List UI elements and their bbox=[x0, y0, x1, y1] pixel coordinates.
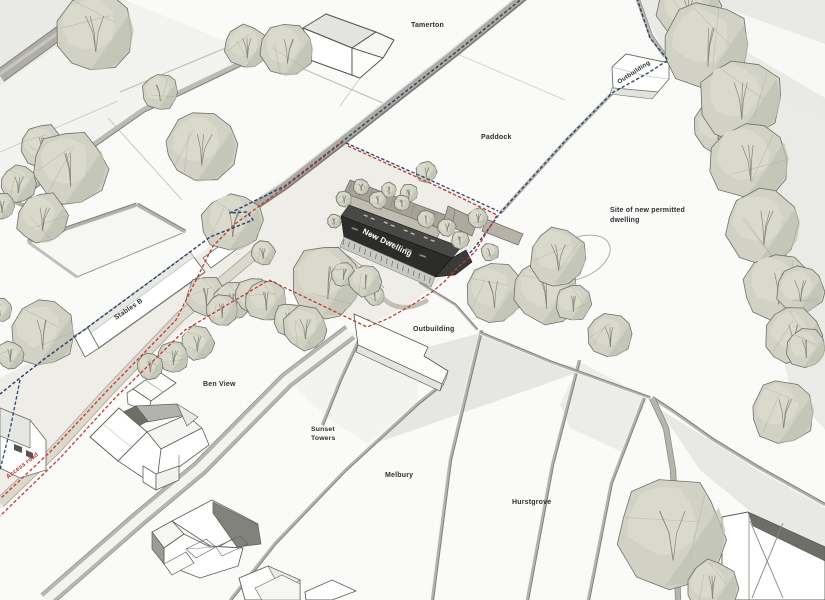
svg-text:Paddock: Paddock bbox=[481, 134, 512, 141]
svg-text:Site of new permitted: Site of new permitted bbox=[610, 207, 685, 214]
svg-text:Sunset: Sunset bbox=[311, 426, 335, 433]
svg-text:Melbury: Melbury bbox=[385, 472, 413, 479]
svg-text:Tamerton: Tamerton bbox=[411, 22, 444, 29]
svg-text:Hurstgrove: Hurstgrove bbox=[512, 499, 551, 506]
svg-text:Towers: Towers bbox=[311, 435, 336, 442]
svg-text:Outbuilding: Outbuilding bbox=[413, 326, 454, 333]
svg-text:Ben View: Ben View bbox=[203, 381, 236, 388]
svg-text:dwelling: dwelling bbox=[610, 217, 640, 224]
